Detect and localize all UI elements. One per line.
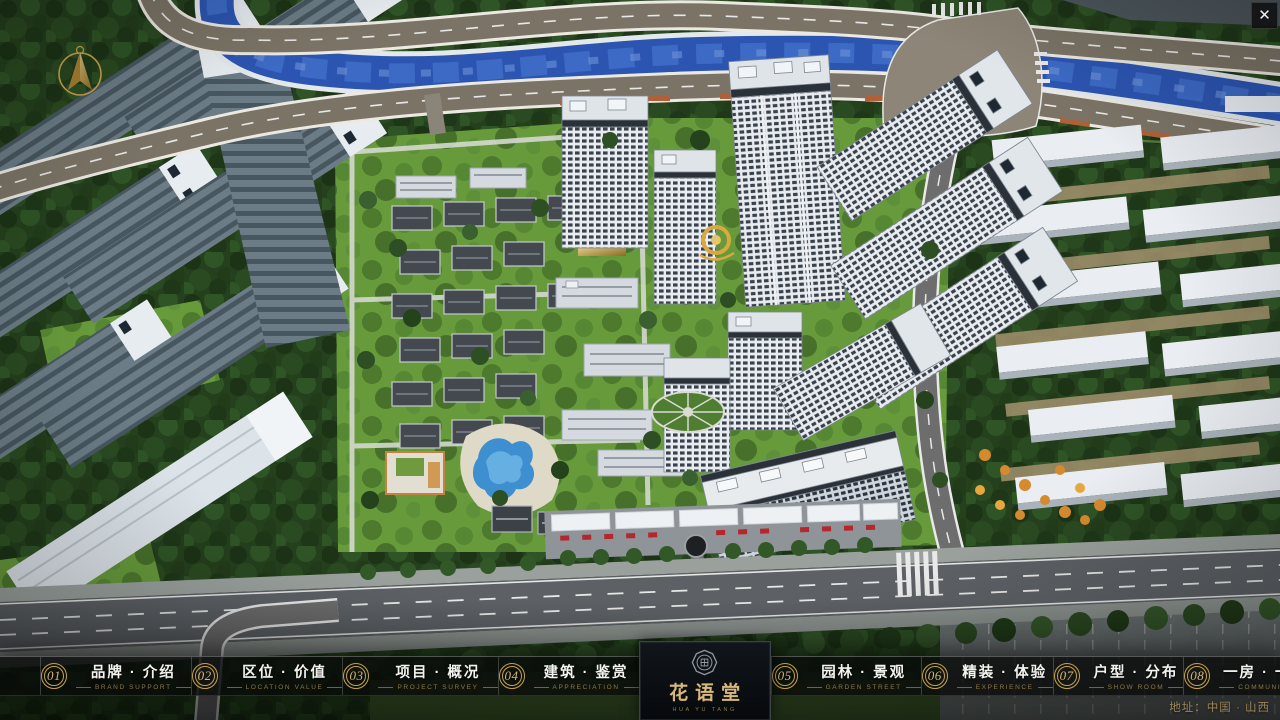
nav-number-badge: 06: [922, 663, 948, 689]
nav-item-architecture[interactable]: 04 建筑 · 鉴赏 APPRECIATION: [498, 657, 639, 695]
nav-item-sublabel: APPRECIATION: [534, 684, 639, 691]
nav-item-garden[interactable]: 05 园林 · 景观 GARDEN STREET: [771, 657, 921, 695]
nav-item-label: 一房 · 一景: [1223, 661, 1280, 682]
logo-panel[interactable]: 花语堂 HUA YU TANG: [639, 641, 771, 720]
masterplan-render: [0, 0, 1280, 720]
nav-item-label: 项目 · 概况: [396, 661, 481, 682]
nav-number-badge: 07: [1054, 663, 1080, 689]
nav-number-badge: 02: [192, 663, 218, 689]
nav-item-sublabel: EXPERIENCE: [957, 684, 1053, 691]
project-logo-subtitle: HUA YU TANG: [673, 707, 737, 713]
nav-number-badge: 08: [1184, 663, 1210, 689]
bottom-navbar: 01 品牌 · 介绍 BRAND SUPPORT 02 区位 · 价值 LOCA…: [0, 656, 1280, 696]
nav-item-sublabel: SHOW ROOM: [1089, 684, 1184, 691]
navbar-spacer-left: [0, 657, 40, 695]
nav-item-view[interactable]: 08 一房 · 一景 COMMUNITY: [1183, 657, 1280, 695]
nav-item-label: 户型 · 分布: [1093, 661, 1178, 682]
nav-item-sublabel: PROJECT SURVEY: [378, 684, 497, 691]
nav-number-badge: 05: [772, 663, 798, 689]
nav-number-badge: 01: [41, 663, 67, 689]
nav-item-location[interactable]: 02 区位 · 价值 LOCATION VALUE: [191, 657, 343, 695]
nav-item-sublabel: GARDEN STREET: [807, 684, 921, 691]
nav-item-label: 精装 · 体验: [962, 661, 1047, 682]
nav-number-badge: 03: [343, 663, 369, 689]
nav-item-sublabel: COMMUNITY: [1219, 684, 1280, 691]
nav-number-badge: 04: [499, 663, 525, 689]
nav-item-floorplan[interactable]: 07 户型 · 分布 SHOW ROOM: [1053, 657, 1184, 695]
project-logo-name: 花语堂: [662, 678, 747, 705]
nav-item-sublabel: BRAND SUPPORT: [76, 684, 191, 691]
nav-item-label: 园林 · 景观: [821, 661, 906, 682]
nav-item-brand[interactable]: 01 品牌 · 介绍 BRAND SUPPORT: [40, 657, 191, 695]
nav-item-label: 区位 · 价值: [242, 661, 327, 682]
nav-item-label: 建筑 · 鉴赏: [544, 661, 629, 682]
nav-item-project[interactable]: 03 项目 · 概况 PROJECT SURVEY: [342, 657, 497, 695]
nav-item-interior[interactable]: 06 精装 · 体验 EXPERIENCE: [921, 657, 1053, 695]
app-window: ✕ 01 品牌 · 介绍 BRAND SUPPORT 02 区位 · 价值 LO…: [0, 0, 1280, 720]
address-text: 地址：中国 · 山西: [1169, 699, 1270, 715]
close-icon: ✕: [1258, 7, 1271, 24]
nav-item-label: 品牌 · 介绍: [91, 661, 176, 682]
logo-emblem-icon: [691, 649, 718, 676]
close-button[interactable]: ✕: [1251, 2, 1278, 29]
nav-item-sublabel: LOCATION VALUE: [227, 684, 343, 691]
